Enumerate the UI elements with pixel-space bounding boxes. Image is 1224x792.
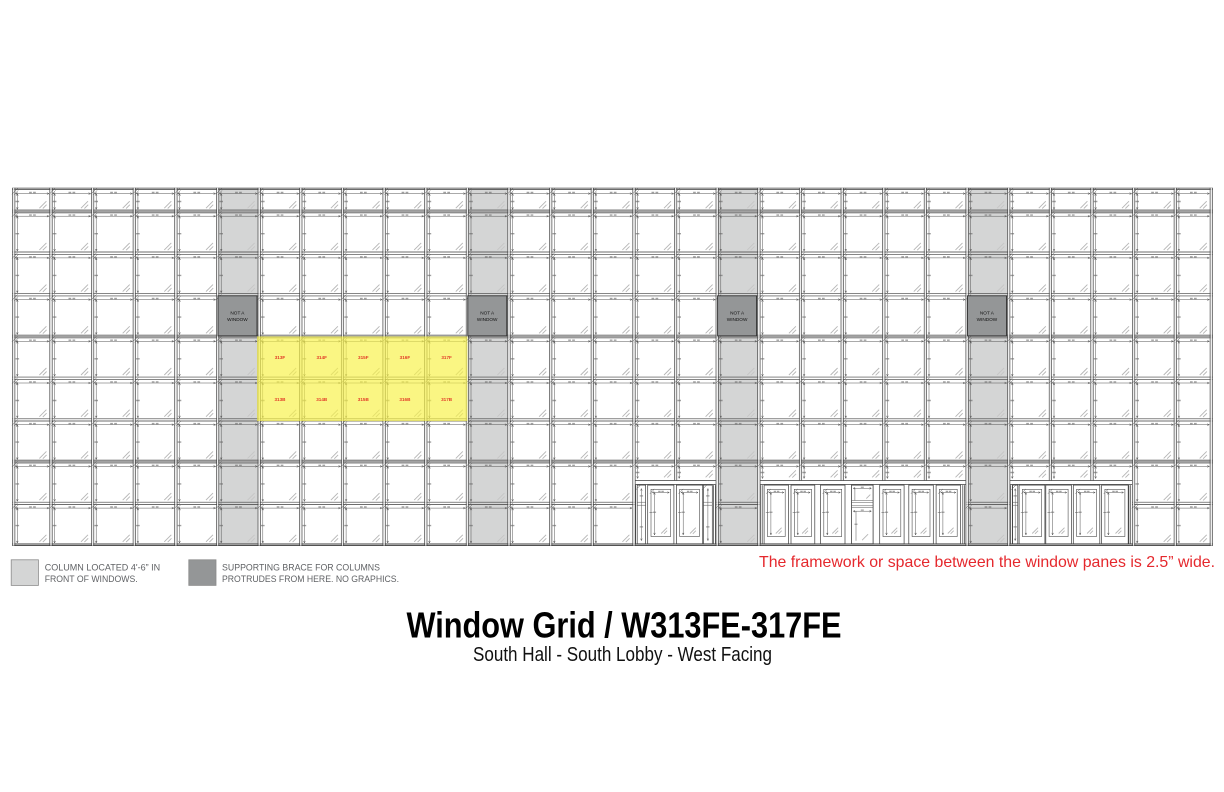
svg-text:NOT A: NOT A [480,310,495,315]
svg-text:317B: 317B [441,397,453,402]
svg-text:COLUMN LOCATED 4'-6” IN: COLUMN LOCATED 4'-6” IN [45,563,161,574]
svg-text:317F: 317F [441,355,452,360]
svg-text:315F: 315F [358,355,369,360]
svg-text:WINDOW: WINDOW [727,317,748,322]
svg-text:316F: 316F [400,355,411,360]
svg-text:314B: 314B [316,397,328,402]
svg-text:316B: 316B [399,397,411,402]
svg-text:NOT A: NOT A [230,310,245,315]
svg-text:PROTRUDES FROM HERE. NO GRAPHI: PROTRUDES FROM HERE. NO GRAPHICS. [222,574,399,585]
svg-text:The framework or space between: The framework or space between the windo… [759,554,1215,571]
svg-text:FRONT OF WINDOWS.: FRONT OF WINDOWS. [45,574,138,585]
svg-text:WINDOW: WINDOW [977,317,998,322]
svg-text:SUPPORTING BRACE FOR COLUMNS: SUPPORTING BRACE FOR COLUMNS [222,563,380,574]
svg-text:WINDOW: WINDOW [227,317,248,322]
svg-text:South Hall - South Lobby - Wes: South Hall - South Lobby - West Facing [473,644,772,666]
svg-text:314F: 314F [316,355,327,360]
svg-text:313B: 313B [275,397,287,402]
svg-text:WINDOW: WINDOW [477,317,498,322]
svg-text:315B: 315B [358,397,370,402]
svg-text:NOT A: NOT A [980,310,995,315]
svg-text:NOT A: NOT A [730,310,745,315]
svg-text:Window Grid / W313FE-317FE: Window Grid / W313FE-317FE [407,605,842,646]
svg-text:313F: 313F [275,355,286,360]
